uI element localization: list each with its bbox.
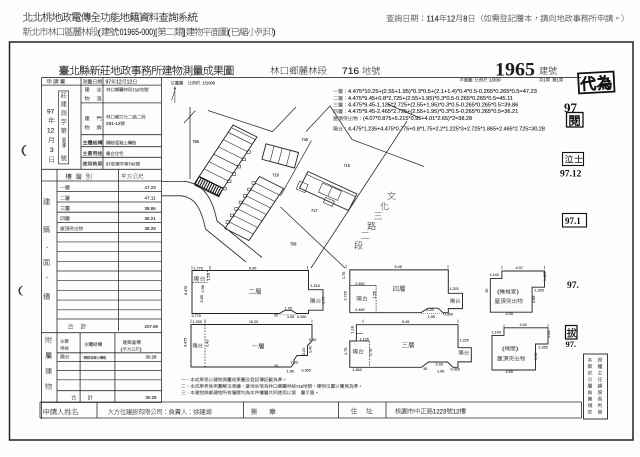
svg-text:2.65: 2.65: [532, 296, 536, 303]
svg-text:2.33: 2.33: [436, 362, 443, 366]
svg-text:0.98: 0.98: [201, 285, 205, 292]
svg-text:1.18: 1.18: [351, 326, 355, 333]
svg-text:·: ·: [46, 245, 49, 251]
svg-text:742: 742: [128, 162, 136, 167]
svg-text:0.350: 0.350: [297, 315, 306, 319]
svg-text:12: 12: [453, 409, 460, 416]
svg-text:0.40: 0.40: [309, 338, 316, 342]
svg-text:4.475*10.25+(2.55+1.95)*0.3*0.: 4.475*10.25+(2.55+1.95)*0.3*0.5+(2.1+1.4…: [348, 89, 537, 95]
svg-text:50: 50: [275, 364, 279, 368]
svg-text:9.45: 9.45: [395, 265, 402, 269]
svg-text:12: 12: [127, 79, 133, 85]
svg-text:1.75: 1.75: [322, 297, 326, 304]
svg-text:3.95: 3.95: [200, 295, 204, 302]
svg-text:30.28: 30.28: [146, 395, 158, 400]
svg-text:47.11: 47.11: [145, 196, 157, 201]
svg-text:12: 12: [116, 79, 122, 85]
svg-text:(: (: [21, 143, 27, 157]
svg-text:9.45: 9.45: [249, 266, 256, 270]
svg-text:1.775: 1.775: [194, 266, 203, 270]
svg-text:97: 97: [106, 162, 111, 167]
svg-text:1.865: 1.865: [353, 368, 362, 372]
svg-text:1.225: 1.225: [460, 338, 469, 342]
svg-text:1.40: 1.40: [309, 346, 313, 353]
svg-text:1.75: 1.75: [207, 273, 211, 280]
svg-text:97: 97: [106, 79, 112, 85]
svg-text:4.07: 4.07: [516, 266, 523, 270]
svg-text:1.02: 1.02: [534, 353, 538, 360]
svg-text:1.425: 1.425: [543, 272, 547, 281]
svg-text:·: ·: [46, 275, 49, 281]
svg-text:6.475: 6.475: [184, 286, 188, 295]
svg-text:758: 758: [290, 241, 297, 246]
svg-text:10.25: 10.25: [249, 320, 258, 324]
svg-text:50: 50: [274, 313, 278, 317]
svg-text:1.75: 1.75: [369, 349, 373, 356]
svg-text:114: 114: [427, 13, 440, 23]
svg-text:): ): [516, 290, 519, 296]
svg-text:]: ]: [182, 26, 185, 37]
svg-text:717: 717: [311, 208, 318, 213]
svg-text:715: 715: [344, 163, 351, 168]
svg-text:4.475: 4.475: [184, 338, 188, 347]
svg-text:2.33: 2.33: [426, 308, 433, 312]
svg-text:1.95: 1.95: [287, 369, 294, 373]
svg-text:1.55: 1.55: [373, 291, 377, 298]
svg-text:1.225: 1.225: [449, 287, 458, 291]
svg-text:4.475*9.45-2.465*2.725+(2.55+1: 4.475*9.45-2.465*2.725+(2.55+1.95)*0.3*0…: [348, 109, 518, 115]
svg-text:1.20: 1.20: [285, 306, 292, 310]
svg-text:2.465: 2.465: [355, 282, 364, 286]
svg-text:1.315: 1.315: [311, 284, 320, 288]
svg-text:716: 716: [342, 66, 362, 76]
svg-text:38.86: 38.86: [145, 206, 157, 211]
svg-text:97.1: 97.1: [565, 216, 581, 226]
svg-text:0.40: 0.40: [206, 340, 210, 347]
svg-text:50: 50: [424, 367, 428, 371]
svg-text:1.125: 1.125: [360, 337, 369, 341]
svg-text:1.265: 1.265: [535, 289, 544, 293]
svg-text:1.145: 1.145: [492, 330, 501, 334]
svg-text:3: 3: [50, 147, 54, 154]
svg-text:(: (: [18, 285, 24, 297]
svg-text:12: 12: [447, 13, 456, 23]
svg-text:755: 755: [193, 139, 200, 144]
svg-text:97.: 97.: [567, 281, 579, 291]
svg-text:30.28: 30.28: [146, 354, 158, 359]
svg-text:36.21: 36.21: [145, 216, 157, 221]
svg-text:716: 716: [132, 87, 140, 92]
svg-text:1.95: 1.95: [428, 315, 435, 319]
svg-text:2.725: 2.725: [344, 291, 348, 300]
svg-text:4.475*9.45+0.8*2.725+(2.55+1.9: 4.475*9.45+0.8*2.725+(2.55+1.95)*0.3*0.5…: [348, 96, 513, 102]
svg-text:4.475*1.235+4.475*0.775+0.8*1.: 4.475*1.235+4.475*0.775+0.8*1.75+2.2*1.2…: [348, 127, 545, 133]
svg-text:): ): [272, 26, 275, 37]
svg-text:(: (: [502, 347, 505, 353]
svg-text:1223: 1223: [433, 409, 447, 416]
svg-text:12: 12: [47, 128, 54, 135]
svg-text:1/200: 1/200: [488, 78, 502, 83]
svg-text:8: 8: [463, 13, 467, 23]
svg-text:716: 716: [296, 384, 303, 389]
svg-text:9.45: 9.45: [402, 320, 409, 324]
svg-text:4.475*9.45-1.125*2.725+(2.55+1: 4.475*9.45-1.125*2.725+(2.55+1.95)*0.3*0…: [348, 103, 518, 109]
svg-text:38.28: 38.28: [145, 226, 157, 231]
svg-text:4.30: 4.30: [506, 312, 513, 316]
svg-text:1.75: 1.75: [342, 272, 346, 279]
svg-text:1/1000: 1/1000: [203, 81, 216, 86]
svg-text:1.95: 1.95: [437, 369, 444, 373]
svg-text:207.69: 207.69: [145, 324, 159, 329]
svg-text:4.59: 4.59: [506, 370, 513, 374]
svg-text::01965-000)[: :01965-000)[: [118, 26, 158, 37]
svg-text:97.: 97.: [566, 339, 577, 349]
svg-text:3.775: 3.775: [192, 314, 201, 318]
svg-text:2.33: 2.33: [291, 360, 298, 364]
svg-text:291-12: 291-12: [106, 121, 121, 126]
svg-text:2.465: 2.465: [355, 308, 364, 312]
svg-text:1.43: 1.43: [547, 331, 551, 338]
svg-text:1.75: 1.75: [344, 348, 348, 355]
svg-text:50: 50: [485, 289, 489, 293]
svg-text:1.95: 1.95: [287, 315, 294, 319]
svg-text:0.365: 0.365: [451, 368, 460, 372]
svg-text:1.145: 1.145: [490, 273, 499, 277]
svg-text:97: 97: [47, 109, 54, 116]
svg-text:4.02: 4.02: [520, 323, 527, 327]
svg-text:716: 716: [273, 173, 280, 178]
svg-text:0988: 0988: [61, 138, 66, 148]
svg-text:746: 746: [302, 137, 309, 142]
svg-text:(: (: [497, 290, 500, 296]
svg-text:1.265: 1.265: [539, 346, 548, 350]
svg-text:0.365: 0.365: [302, 368, 311, 372]
svg-text:1.235: 1.235: [193, 320, 202, 324]
svg-text:97.12: 97.12: [560, 170, 582, 180]
svg-text:): ): [516, 347, 519, 353]
svg-text:0.365: 0.365: [444, 313, 453, 317]
svg-text:47.23: 47.23: [145, 185, 157, 190]
svg-text:2.20: 2.20: [302, 348, 306, 355]
